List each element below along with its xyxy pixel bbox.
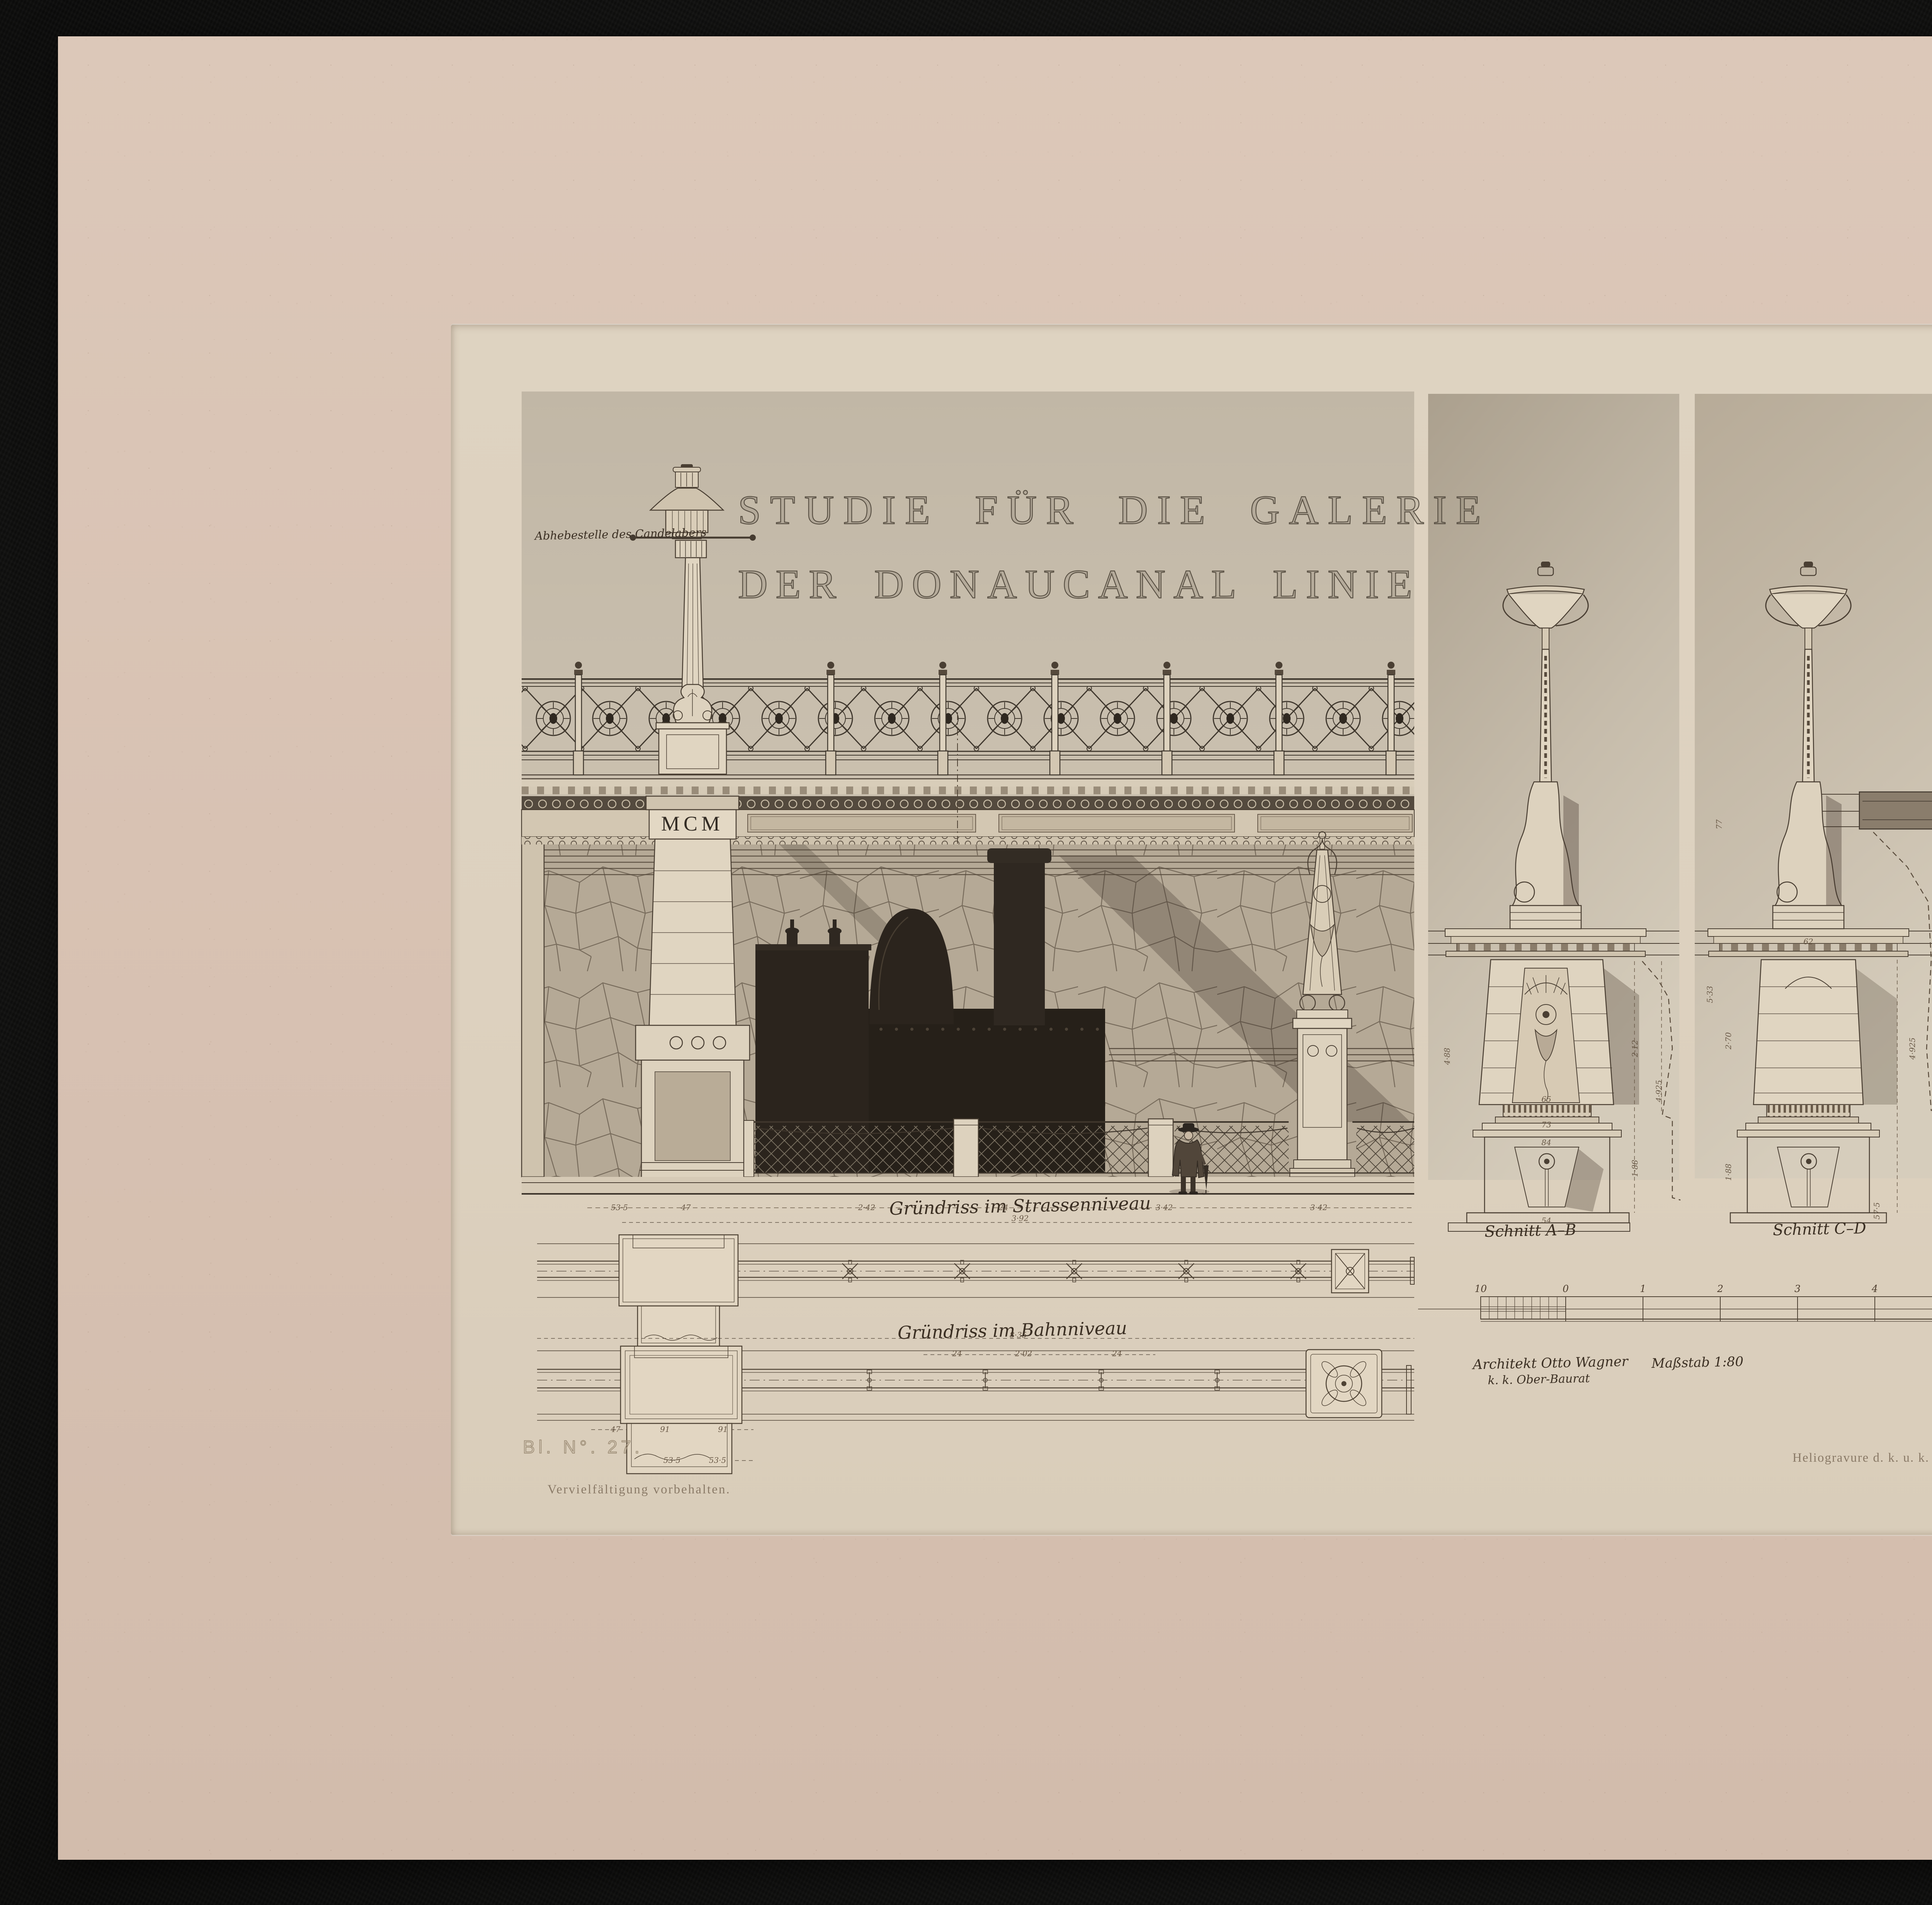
section-cd-caption: Schnitt C–D bbox=[1773, 1219, 1889, 1239]
dimension-label: 53·5 bbox=[709, 1456, 726, 1465]
candelabra-annotation: Abhebestelle des Candelabers bbox=[535, 527, 634, 542]
dimension-label: 0 bbox=[1563, 1283, 1569, 1294]
dimension-label: 62 bbox=[1803, 937, 1813, 946]
signature-line2: k. k. Ober-Baurat bbox=[1473, 1371, 1605, 1388]
dimension-label: 2 bbox=[1717, 1283, 1723, 1294]
dimension-label: 73 bbox=[1541, 1120, 1551, 1129]
dimension-label: 91 bbox=[660, 1425, 670, 1434]
scale-caption: Maßstab 1:80 bbox=[1651, 1353, 1768, 1371]
sidewalk bbox=[522, 1177, 1414, 1195]
print-plate: MCM bbox=[451, 324, 1932, 1536]
edge-pilaster bbox=[522, 810, 544, 1177]
section-ab-caption: Schnitt A–B bbox=[1485, 1221, 1601, 1241]
dimension-label: 1 bbox=[1640, 1283, 1646, 1294]
mat-board: MCM bbox=[58, 36, 1932, 1860]
dimension-label: 2·02 bbox=[1015, 1349, 1032, 1358]
candelabrum-base-plan bbox=[1306, 1350, 1382, 1418]
dimension-label: 65 bbox=[1541, 1095, 1551, 1104]
printer-credit: Heliogravure d. k. u. k. m. g. Inst. bbox=[1793, 1451, 1932, 1465]
plan-rail-drawing bbox=[537, 1338, 1414, 1474]
copyright-note: Vervielfältigung vorbehalten. bbox=[548, 1483, 731, 1497]
artwork-title-line2: DER DONAUCANAL LINIE bbox=[738, 561, 1418, 608]
dimension-label: 57·5 bbox=[1872, 1202, 1881, 1220]
scale-bar bbox=[1418, 1297, 1932, 1321]
dimension-label: 1·88 bbox=[1630, 1160, 1639, 1177]
dimension-label: 3 bbox=[1794, 1283, 1801, 1294]
dimension-label: 1·88 bbox=[1724, 1164, 1733, 1181]
dimension-label: 4 bbox=[1871, 1283, 1878, 1294]
dimension-label: 3·42 bbox=[1310, 1203, 1328, 1212]
dimension-label: 91 bbox=[718, 1425, 728, 1434]
dimension-label: 53·5 bbox=[663, 1456, 681, 1465]
dimension-label: 24 bbox=[1112, 1349, 1122, 1358]
image-area: MCM bbox=[522, 392, 1932, 1470]
dimension-label: 4·925 bbox=[1908, 1037, 1917, 1060]
artwork-title-line1: STUDIE FÜR DIE GALERIE bbox=[738, 487, 1418, 534]
dimension-label: 77 bbox=[1714, 819, 1724, 829]
section-cd-drawing bbox=[1695, 394, 1932, 1267]
sheet-number: Bl. N°. 27. bbox=[523, 1436, 643, 1457]
dimension-label: 53·5 bbox=[611, 1203, 628, 1212]
dimension-label: 2·70 bbox=[1724, 1032, 1733, 1050]
dimension-label: 84 bbox=[1541, 1138, 1551, 1147]
architect-signature: Architekt Otto Wagner k. k. Ober-Baurat bbox=[1473, 1354, 1605, 1388]
signature-line1: Architekt Otto Wagner bbox=[1473, 1354, 1604, 1374]
pillar-inscription: MCM bbox=[661, 812, 724, 835]
dimension-label: 5·33 bbox=[1705, 986, 1714, 1003]
engraving-svg: MCM bbox=[522, 392, 1932, 1470]
dimension-label: 47 bbox=[680, 1203, 691, 1212]
dimension-label: 47 bbox=[610, 1425, 621, 1434]
dimension-label: 10 bbox=[1475, 1283, 1487, 1294]
dimension-label: 2·12 bbox=[1630, 1040, 1639, 1058]
page-background: MCM bbox=[0, 0, 1932, 1905]
dimension-label: 4·88 bbox=[1442, 1048, 1452, 1066]
dimension-label: 24 bbox=[952, 1349, 962, 1358]
dimension-label: 4·925 bbox=[1654, 1080, 1663, 1102]
